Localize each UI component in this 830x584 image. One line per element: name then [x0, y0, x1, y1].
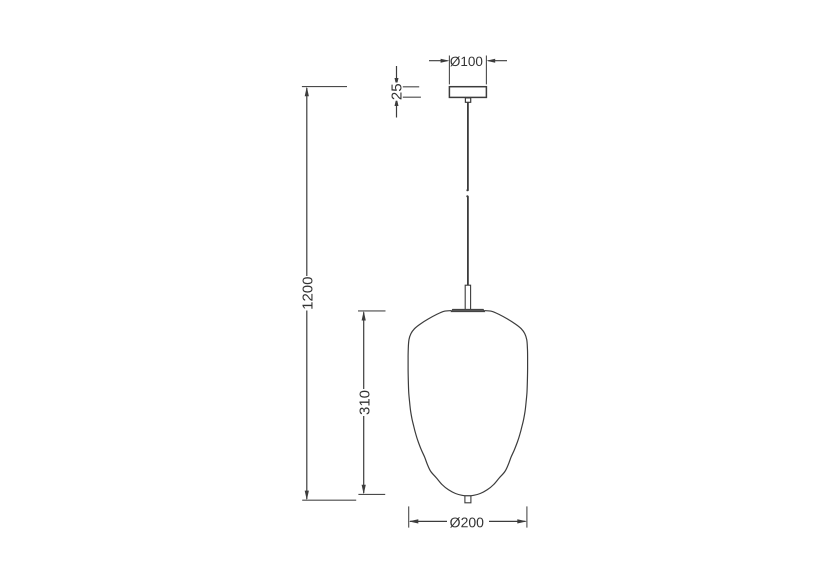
- svg-text:25: 25: [388, 83, 405, 100]
- svg-text:1200: 1200: [300, 277, 317, 310]
- svg-text:Ø100: Ø100: [450, 54, 483, 69]
- svg-text:Ø200: Ø200: [450, 514, 484, 530]
- svg-text:310: 310: [357, 390, 374, 415]
